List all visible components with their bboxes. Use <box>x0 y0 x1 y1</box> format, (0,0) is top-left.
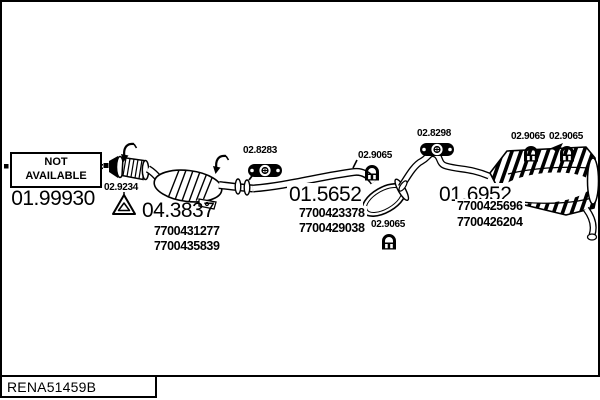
rear-silencer-oe-number-1: 7700425696 <box>455 199 525 213</box>
rear-silencer-oe-number-2: 7700426204 <box>455 215 525 229</box>
not-available-line1: NOT <box>44 156 67 170</box>
rubber-hanger-icon <box>248 164 282 177</box>
mid-silencer-oe-number-2: 7700429038 <box>297 221 367 235</box>
mid-top-clamp-code: 02.9065 <box>358 150 392 161</box>
rubber-hanger-icon <box>420 143 454 156</box>
parts-diagram-page: { "diagram": { "reference_code": "RENA51… <box>0 0 600 400</box>
clamp-icon <box>365 165 379 181</box>
catalyst-oe-number-2: 7700435839 <box>154 239 220 253</box>
front-flex-pipe-drawing <box>109 156 160 180</box>
rear-hanger-code: 02.8298 <box>417 128 451 139</box>
diagram-frame: NOT AVAILABLE 01.99930 02.9234 04.3837 7… <box>0 0 600 377</box>
mid-bottom-clamp-code: 02.9065 <box>371 219 405 230</box>
clamp-icon <box>382 234 396 250</box>
gasket-triangle-icon <box>113 192 135 214</box>
reference-code: RENA51459B <box>7 379 96 395</box>
front-pipe-code: 01.99930 <box>6 187 100 211</box>
gasket-code: 02.9234 <box>104 182 138 193</box>
not-available-box: NOT AVAILABLE <box>10 152 102 188</box>
mid-silencer-code: 01.5652 <box>287 183 363 207</box>
mid-silencer-oe-number-1: 7700423378 <box>297 206 367 220</box>
not-available-line2: AVAILABLE <box>25 170 86 184</box>
joint-arrow-icon <box>213 156 229 174</box>
catalyst-code: 04.3837 <box>142 199 214 223</box>
rear-clamp-left-code: 02.9065 <box>511 131 545 142</box>
rear-clamp-right-code: 02.9065 <box>549 131 583 142</box>
front-hanger-code: 02.8283 <box>243 145 277 156</box>
catalyst-oe-number-1: 7700431277 <box>154 224 220 238</box>
reference-code-box: RENA51459B <box>0 375 157 398</box>
